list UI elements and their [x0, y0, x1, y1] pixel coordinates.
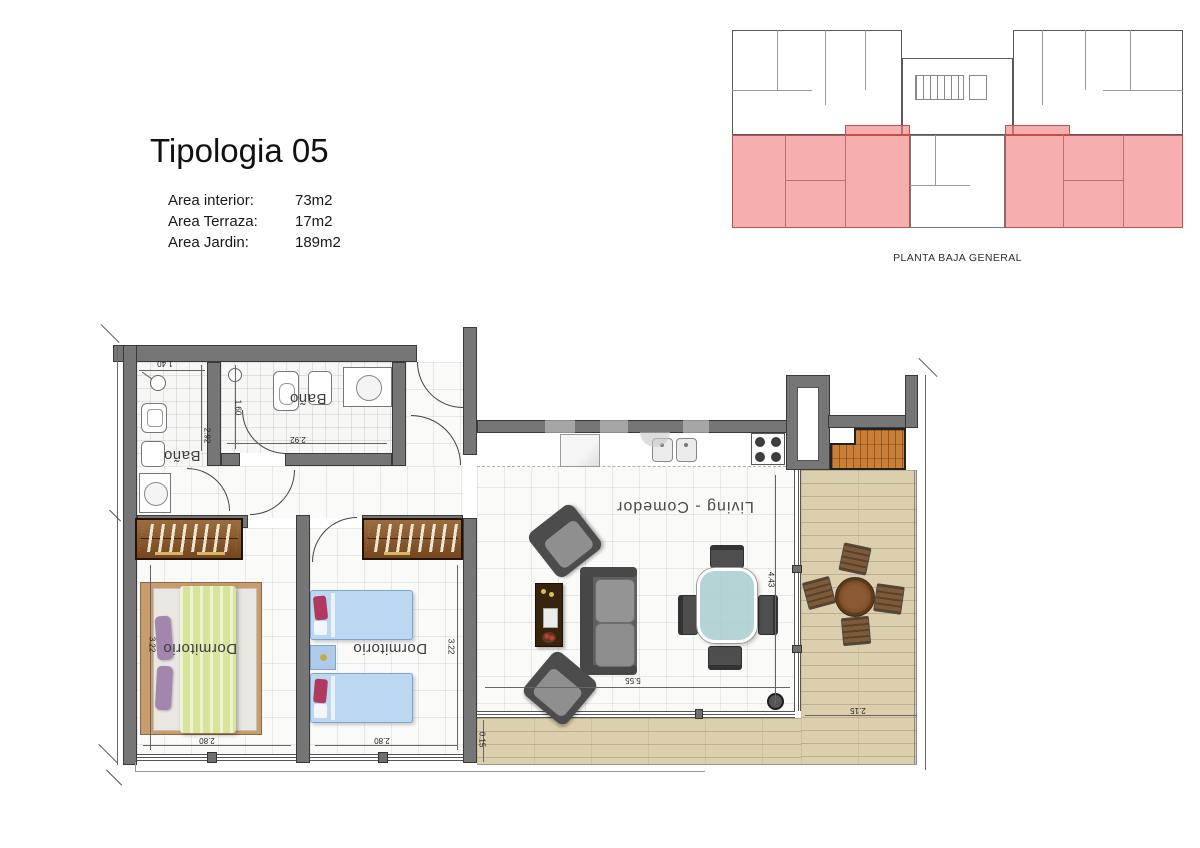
closet-shelf	[197, 552, 225, 555]
room-label-bedroom2: Dormitorio	[335, 640, 445, 657]
key-plan-line	[785, 180, 845, 181]
key-plan-line	[1063, 135, 1064, 228]
terrace-chair	[838, 542, 871, 575]
dim-line	[805, 715, 917, 716]
toilet-bowl-icon	[147, 409, 163, 427]
key-plan-line	[825, 30, 826, 105]
watermark	[600, 420, 628, 433]
key-plan-line	[732, 90, 812, 91]
sofa	[580, 567, 637, 675]
sink-icon	[356, 375, 382, 401]
room-label-bath2: Baño	[263, 390, 353, 407]
sofa-cushion	[595, 579, 635, 623]
room-label-bath1: Baño	[137, 447, 227, 464]
sheet-fold	[331, 593, 335, 637]
burner-icon	[755, 452, 765, 462]
dim-line	[143, 745, 291, 746]
area-row: Area interior: 73m2	[168, 190, 341, 211]
highlighted-unit-left	[732, 135, 910, 228]
wall-living-west	[463, 518, 477, 763]
dim-bedroom1-width: 2.80	[192, 736, 222, 745]
hangers-icon	[139, 524, 239, 552]
living-sliding-door-east	[794, 470, 801, 711]
area-label: Area Terraza:	[168, 211, 295, 232]
dim-deck-strip: 0.15	[478, 726, 487, 754]
double-bed	[140, 582, 262, 735]
garden-boundary-line	[135, 771, 705, 772]
key-plan-line	[1063, 180, 1123, 181]
terrace-chair	[873, 583, 905, 615]
shower-head-icon	[150, 375, 166, 391]
key-plan-elevator	[969, 75, 987, 100]
wall-right-stub	[905, 375, 918, 428]
kitchen-counter	[477, 433, 786, 467]
watermark	[545, 420, 575, 433]
area-value: 17m2	[295, 211, 333, 232]
dining-table	[697, 568, 757, 643]
dimension-line-right	[925, 375, 926, 770]
nightstand	[310, 645, 336, 670]
closet-bedroom2	[362, 518, 463, 560]
wall-entry-column	[463, 327, 477, 455]
dining-chair	[710, 545, 744, 568]
key-plan-upper-right-unit	[1013, 30, 1183, 135]
faucet-icon	[684, 443, 688, 447]
key-plan-lower-core	[910, 135, 1005, 228]
dim-bath1-width: 1.40	[150, 359, 180, 368]
area-row: Area Terraza: 17m2	[168, 211, 341, 232]
dim-line	[150, 565, 151, 750]
dimension-tick	[918, 358, 937, 377]
page-title: Tipologia 05	[150, 132, 329, 170]
area-summary: Area interior: 73m2 Area Terraza: 17m2 A…	[168, 190, 341, 253]
decor-icon	[541, 589, 546, 594]
pillow	[313, 595, 328, 620]
key-plan-line	[845, 135, 846, 228]
sofa-armrest	[580, 567, 637, 577]
sofa-cushion	[595, 623, 635, 667]
sheet-fold	[331, 676, 335, 720]
coffee-table	[535, 583, 563, 647]
dim-line	[139, 370, 205, 371]
dim-line	[457, 565, 458, 750]
storage-notch	[830, 428, 856, 445]
dim-living-width: 5.55	[618, 676, 648, 685]
key-plan: PLANTA BAJA GENERAL	[725, 20, 1190, 270]
hall-floor	[137, 466, 463, 518]
dim-bedroom2-width: 2.80	[367, 736, 397, 745]
key-plan-line	[1123, 135, 1124, 228]
fridge-icon	[560, 434, 600, 467]
room-label-bedroom1: Dormitorio	[145, 640, 255, 657]
window-mullion	[378, 752, 388, 763]
dim-bedroom2-depth: 3.22	[447, 635, 456, 659]
deck-edge-line	[477, 764, 917, 765]
terrace-table	[835, 577, 875, 617]
burner-icon	[755, 437, 765, 447]
terrace-chair	[841, 616, 871, 646]
book-icon	[543, 608, 558, 628]
decor-icon	[320, 654, 327, 661]
dim-terrace-width: 2.15	[843, 706, 873, 715]
window-mullion	[695, 709, 703, 719]
flowers-icon	[542, 632, 556, 643]
dim-line	[485, 687, 790, 688]
dimension-tick	[106, 769, 122, 785]
key-plan-line	[1085, 30, 1086, 90]
room-label-living: Living - Comedor	[585, 497, 785, 515]
window-mullion	[792, 645, 802, 653]
window-mullion	[792, 565, 802, 573]
dining-chair	[678, 595, 698, 635]
pillow	[314, 621, 327, 635]
key-plan-line	[785, 135, 786, 228]
living-sliding-door-south	[477, 711, 795, 718]
window-right-column	[797, 387, 819, 461]
highlighted-unit-left-step	[845, 125, 910, 135]
area-label: Area interior:	[168, 190, 295, 211]
main-floorplan: 1.40 2.92 1.60 2.92 3.22 3.22 2.80 2.80 …	[95, 315, 945, 815]
key-plan-upper-left-unit	[732, 30, 902, 135]
dim-bath1-depth: 2.92	[203, 424, 212, 448]
dimension-line-left	[117, 347, 118, 765]
floorplan-sheet: Tipologia 05 Area interior: 73m2 Area Te…	[0, 0, 1200, 848]
key-plan-line	[1103, 90, 1183, 91]
bedroom2-door-swing	[312, 517, 357, 562]
dimension-tick	[100, 324, 119, 343]
closet-shelf	[155, 552, 183, 555]
decor-icon	[549, 592, 554, 597]
area-label: Area Jardin:	[168, 232, 295, 253]
area-value: 73m2	[295, 190, 333, 211]
dim-line	[315, 745, 458, 746]
wall-bedroom-divider	[296, 515, 310, 763]
hangers-icon	[366, 524, 459, 552]
closet-bedroom1	[135, 518, 243, 560]
wall-kitchen	[477, 420, 790, 433]
highlighted-unit-right	[1005, 135, 1183, 228]
dining-chair	[708, 646, 742, 670]
wall-bath2-right	[392, 362, 406, 466]
dim-bath2-depth: 1.60	[234, 396, 243, 420]
watermark	[683, 420, 709, 433]
stairs-icon	[915, 75, 964, 100]
wall-bath2-bottom-b	[285, 453, 392, 466]
sink-icon	[144, 482, 168, 506]
key-plan-line	[777, 30, 778, 90]
pillow	[313, 678, 328, 703]
key-plan-caption: PLANTA BAJA GENERAL	[725, 252, 1190, 264]
area-value: 189m2	[295, 232, 341, 253]
window-mullion	[207, 752, 217, 763]
blanket	[180, 586, 236, 733]
kitchen-sink-icon	[676, 438, 697, 462]
key-plan-line	[935, 135, 936, 185]
garden-deck-strip	[477, 718, 801, 765]
burner-icon	[771, 452, 781, 462]
key-plan-line	[1130, 30, 1131, 90]
key-plan-line	[1042, 30, 1043, 105]
pillow	[314, 704, 327, 718]
burner-icon	[771, 437, 781, 447]
pillow	[155, 666, 173, 711]
dimension-tick	[109, 509, 121, 521]
area-row: Area Jardin: 189m2	[168, 232, 341, 253]
key-plan-line	[865, 30, 866, 90]
dimension-tick	[98, 744, 117, 763]
garden-boundary-return	[135, 762, 136, 772]
highlighted-unit-right-step	[1005, 125, 1070, 135]
single-bed	[310, 673, 413, 723]
closet-shelf	[384, 552, 410, 555]
dim-bath2-width: 2.92	[283, 435, 313, 444]
key-plan-line	[910, 185, 970, 186]
dim-living-depth: 4.43	[767, 566, 776, 594]
single-bed	[310, 590, 413, 640]
